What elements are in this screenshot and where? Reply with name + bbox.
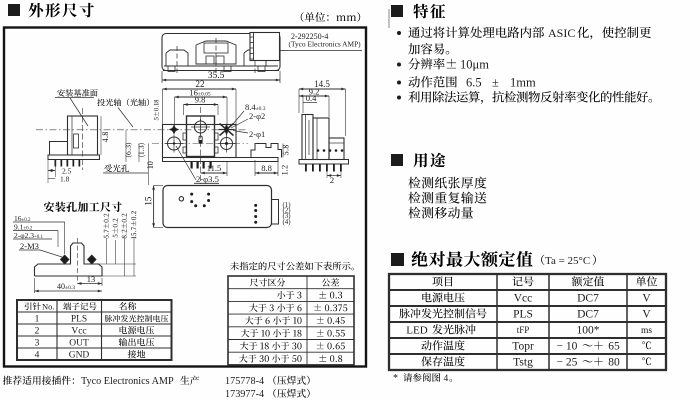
- svg-text:(Tyco Electronics AMP): (Tyco Electronics AMP): [289, 40, 362, 49]
- svg-text:OUT: OUT: [69, 339, 89, 349]
- svg-text:PLS: PLS: [71, 315, 87, 325]
- svg-text:6.5: 6.5: [466, 76, 482, 90]
- svg-text:3: 3: [35, 339, 40, 349]
- svg-text:PLS: PLS: [513, 309, 533, 321]
- svg-text:±: ±: [492, 76, 499, 90]
- svg-text:Topr: Topr: [512, 341, 534, 353]
- svg-text:10μm: 10μm: [460, 58, 489, 72]
- svg-text:4: 4: [444, 374, 449, 384]
- svg-text:ASIC: ASIC: [548, 26, 575, 40]
- svg-text:65: 65: [608, 341, 620, 353]
- svg-text:LED: LED: [406, 325, 427, 337]
- svg-text:*: *: [393, 373, 398, 384]
- svg-text:13: 13: [87, 274, 96, 284]
- svg-text:GND: GND: [69, 351, 90, 361]
- svg-text:2-M3: 2-M3: [20, 241, 39, 251]
- svg-text:Vcc: Vcc: [71, 327, 86, 337]
- svg-text:1mm: 1mm: [510, 76, 536, 90]
- svg-text:− 25: − 25: [557, 357, 578, 369]
- svg-text:DC7: DC7: [577, 293, 599, 305]
- svg-text:2: 2: [330, 175, 334, 185]
- svg-text:100*: 100*: [577, 325, 600, 337]
- svg-text:1.8: 1.8: [60, 175, 70, 184]
- svg-text:DC7: DC7: [577, 309, 599, 321]
- svg-text:ms: ms: [641, 326, 652, 336]
- svg-text:173977-4: 173977-4: [225, 389, 264, 400]
- svg-text:8.8: 8.8: [261, 163, 272, 173]
- svg-text:175778-4: 175778-4: [225, 376, 264, 387]
- svg-text:2-φ1: 2-φ1: [249, 129, 265, 139]
- svg-text:(4): (4): [283, 219, 291, 226]
- svg-text:Tstg: Tstg: [513, 357, 533, 369]
- svg-text:Tyco Electronics AMP: Tyco Electronics AMP: [81, 376, 174, 387]
- svg-text:1: 1: [35, 315, 40, 325]
- svg-text:2: 2: [35, 327, 40, 337]
- svg-text:Vcc: Vcc: [514, 293, 533, 305]
- svg-text:2-φ3.5: 2-φ3.5: [196, 174, 219, 184]
- svg-text:Ta = 25°C: Ta = 25°C: [545, 255, 590, 267]
- svg-text:tFP: tFP: [517, 325, 530, 335]
- svg-text:0.4: 0.4: [306, 93, 317, 103]
- svg-text:V: V: [642, 293, 651, 305]
- svg-text:No.: No.: [42, 302, 55, 312]
- svg-text:2-φ2: 2-φ2: [249, 111, 265, 121]
- svg-text:− 10: − 10: [557, 341, 578, 353]
- svg-text:V: V: [642, 309, 651, 321]
- svg-text:11.5: 11.5: [207, 163, 222, 173]
- svg-text:9.8: 9.8: [195, 95, 206, 105]
- svg-text:35.5: 35.5: [208, 71, 225, 81]
- svg-text:80: 80: [608, 357, 620, 369]
- svg-text:4: 4: [35, 351, 40, 361]
